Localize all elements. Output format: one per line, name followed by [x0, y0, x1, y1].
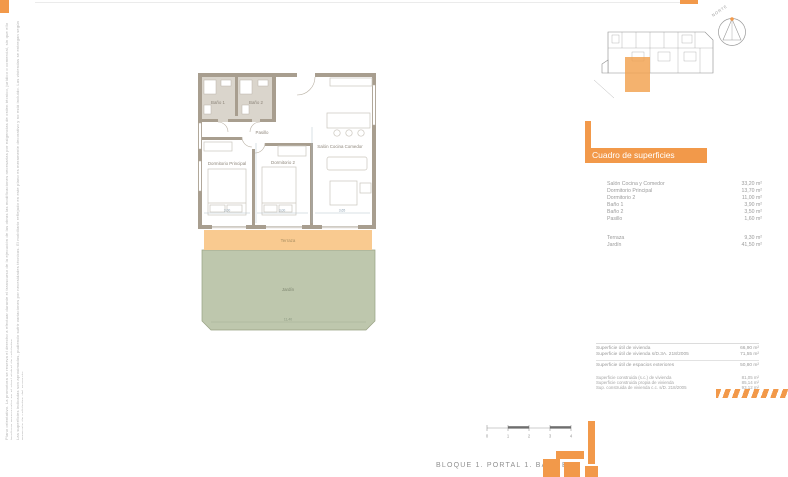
room-label-dormitorio-2: Dormitorio 2	[271, 160, 295, 165]
svg-text:3: 3	[549, 434, 552, 439]
floor-plan: 3,00 3,00 3,65 11,40 Baño 1 Baño 2 Pasil…	[190, 65, 390, 345]
surfaces-title: Cuadro de superficies	[585, 148, 707, 163]
unit-highlight	[625, 57, 650, 92]
building-outline	[608, 32, 713, 73]
scale-tick-labels: 0 1 2 3 4	[486, 434, 573, 439]
table-row: Dormitorio 211,00 m²	[607, 195, 762, 202]
compass-label: NORTE	[711, 3, 729, 17]
table-row: Baño 13,90 m²	[607, 202, 762, 209]
legal-disclaimer-col2: Las superficies indicadas son aproximada…	[15, 8, 23, 440]
svg-text:1: 1	[507, 434, 510, 439]
dim-label: 3,00	[279, 209, 286, 213]
table-row: Jardín41,50 m²	[607, 242, 762, 249]
svg-text:2: 2	[528, 434, 531, 439]
room-label-pasillo: Pasillo	[256, 130, 269, 135]
glass-doors	[212, 226, 358, 228]
room-label-salon: Salón Cocina Comedor	[317, 144, 363, 149]
room-label-bano1: Baño 1	[211, 100, 225, 105]
summary-divider	[596, 360, 759, 361]
table-row: Salón Cocina y Comedor33,20 m²	[607, 181, 762, 188]
plan-sheet: Plano orientativo. La promotora se reser…	[0, 0, 788, 477]
room-label-terraza: Terraza	[281, 238, 296, 243]
north-dot	[730, 17, 734, 21]
svg-text:4: 4	[570, 434, 573, 439]
room-label-jardin: Jardín	[282, 287, 295, 292]
stripe-decoration	[716, 389, 788, 398]
dim-label-garden: 11,40	[284, 318, 292, 322]
porch-outline	[602, 60, 608, 73]
dim-label: 3,65	[339, 209, 346, 213]
scale-bar: 0 1 2 3 4	[485, 423, 575, 441]
summary-block: Superficie útil de vivienda66,90 m² Supe…	[596, 343, 759, 390]
legal-disclaimer-col1: Plano orientativo. La promotora se reser…	[4, 8, 12, 440]
corner-accent-top-right	[680, 0, 698, 4]
key-plan	[592, 22, 727, 107]
room-label-dormitorio-principal: Dormitorio Principal	[208, 161, 246, 166]
top-border-line	[35, 2, 680, 3]
svg-text:0: 0	[486, 434, 489, 439]
table-row: Dormitorio Principal13,70 m²	[607, 188, 762, 195]
dim-label: 3,00	[224, 209, 231, 213]
table-row: Baño 23,50 m²	[607, 209, 762, 216]
summary-row: Superficie útil de vivienda s/D.3A. 218/…	[596, 352, 759, 358]
table-row: Terraza9,30 m²	[607, 235, 762, 242]
banner-bracket	[585, 121, 591, 148]
room-label-bano2: Baño 2	[249, 100, 263, 105]
table-row: Pasillo1,60 m²	[607, 216, 762, 223]
surfaces-table-outdoor: Terraza9,30 m² Jardín41,50 m²	[607, 235, 762, 249]
surfaces-table: Salón Cocina y Comedor33,20 m² Dormitori…	[607, 181, 762, 223]
